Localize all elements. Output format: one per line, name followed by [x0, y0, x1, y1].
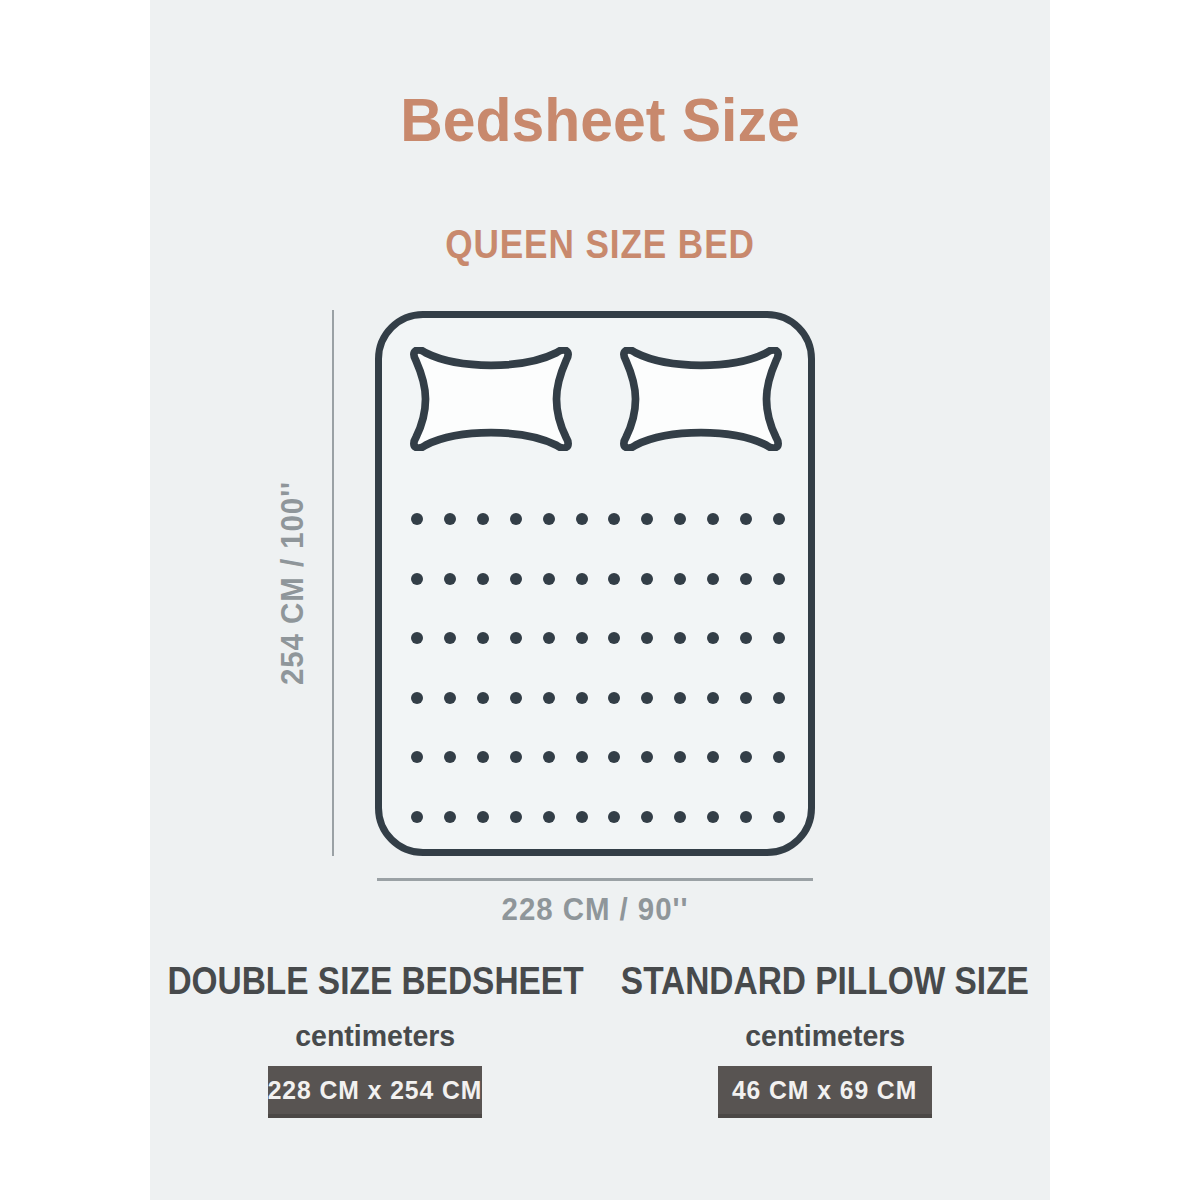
spec-bedsheet-value: 228 CM x 254 CM — [268, 1075, 483, 1106]
dot — [608, 811, 620, 823]
dot — [444, 573, 456, 585]
width-dimension-line — [377, 878, 813, 881]
dot — [510, 513, 522, 525]
dot — [411, 751, 423, 763]
dot — [510, 751, 522, 763]
dot — [641, 573, 653, 585]
dot — [510, 573, 522, 585]
dot — [740, 811, 752, 823]
dot — [740, 632, 752, 644]
dot — [477, 632, 489, 644]
dot — [444, 811, 456, 823]
dot-row — [411, 811, 785, 823]
dot — [576, 692, 588, 704]
height-dimension-label-wrap: 254 CM / 100'' — [250, 310, 336, 856]
dot — [773, 632, 785, 644]
bed-type-subtitle: QUEEN SIZE BED — [204, 222, 996, 267]
dot — [576, 513, 588, 525]
width-dimension-label: 228 CM / 90'' — [388, 892, 802, 928]
spec-pillow: STANDARD PILLOW SIZE centimeters 46 CM x… — [600, 960, 1050, 1118]
height-dimension-label: 254 CM / 100'' — [275, 481, 311, 685]
dot — [674, 513, 686, 525]
dot — [740, 573, 752, 585]
dot — [641, 632, 653, 644]
dot — [707, 573, 719, 585]
dot — [477, 573, 489, 585]
dot — [641, 751, 653, 763]
dot — [773, 811, 785, 823]
spec-section: DOUBLE SIZE BEDSHEET centimeters 228 CM … — [150, 960, 1050, 1118]
page-title: Bedsheet Size — [173, 84, 1028, 155]
spec-pillow-unit-label: centimeters — [745, 1019, 905, 1053]
dot — [510, 632, 522, 644]
dot-row — [411, 692, 785, 704]
dot — [641, 692, 653, 704]
dot — [740, 751, 752, 763]
dot — [543, 692, 555, 704]
dot — [543, 811, 555, 823]
dot — [411, 811, 423, 823]
dot — [707, 811, 719, 823]
dot — [543, 632, 555, 644]
dot — [773, 513, 785, 525]
dot — [444, 692, 456, 704]
dot — [674, 751, 686, 763]
dot — [576, 632, 588, 644]
dot-row — [411, 751, 785, 763]
dot — [707, 513, 719, 525]
dot — [707, 632, 719, 644]
spec-bedsheet: DOUBLE SIZE BEDSHEET centimeters 228 CM … — [150, 960, 600, 1118]
dot — [707, 692, 719, 704]
dot — [576, 751, 588, 763]
dot — [608, 751, 620, 763]
dot — [411, 513, 423, 525]
spec-bedsheet-unit-label: centimeters — [295, 1019, 455, 1053]
bed-diagram — [375, 311, 815, 856]
dot — [576, 811, 588, 823]
dot — [411, 573, 423, 585]
dot — [674, 632, 686, 644]
spec-pillow-value-box: 46 CM x 69 CM — [718, 1066, 932, 1118]
infographic-panel: Bedsheet Size QUEEN SIZE BED 254 CM / 10… — [150, 0, 1050, 1200]
dot — [608, 513, 620, 525]
dot — [608, 692, 620, 704]
bedsheet-dot-pattern — [411, 513, 785, 823]
spec-pillow-title: STANDARD PILLOW SIZE — [621, 960, 1029, 1003]
dot — [740, 513, 752, 525]
dot — [608, 573, 620, 585]
dot — [674, 573, 686, 585]
dot — [510, 811, 522, 823]
dot — [674, 692, 686, 704]
dot-row — [411, 632, 785, 644]
dot-row — [411, 573, 785, 585]
dot — [444, 513, 456, 525]
dot — [576, 573, 588, 585]
dot — [773, 692, 785, 704]
dot — [510, 692, 522, 704]
dot — [608, 632, 620, 644]
dot — [543, 573, 555, 585]
dot — [411, 632, 423, 644]
dot — [641, 513, 653, 525]
dot — [543, 751, 555, 763]
dot — [641, 811, 653, 823]
dot — [773, 751, 785, 763]
dot — [477, 513, 489, 525]
dot — [477, 692, 489, 704]
dot — [707, 751, 719, 763]
dot — [444, 751, 456, 763]
dot — [444, 632, 456, 644]
pillow-icon — [615, 347, 787, 451]
dot — [674, 811, 686, 823]
dot — [411, 692, 423, 704]
dot — [740, 692, 752, 704]
dot — [773, 573, 785, 585]
dot — [543, 513, 555, 525]
spec-bedsheet-title: DOUBLE SIZE BEDSHEET — [167, 960, 583, 1003]
dot — [477, 811, 489, 823]
pillow-icon — [405, 347, 577, 451]
spec-bedsheet-value-box: 228 CM x 254 CM — [268, 1066, 482, 1118]
spec-pillow-value: 46 CM x 69 CM — [732, 1075, 917, 1106]
dot — [477, 751, 489, 763]
dot-row — [411, 513, 785, 525]
